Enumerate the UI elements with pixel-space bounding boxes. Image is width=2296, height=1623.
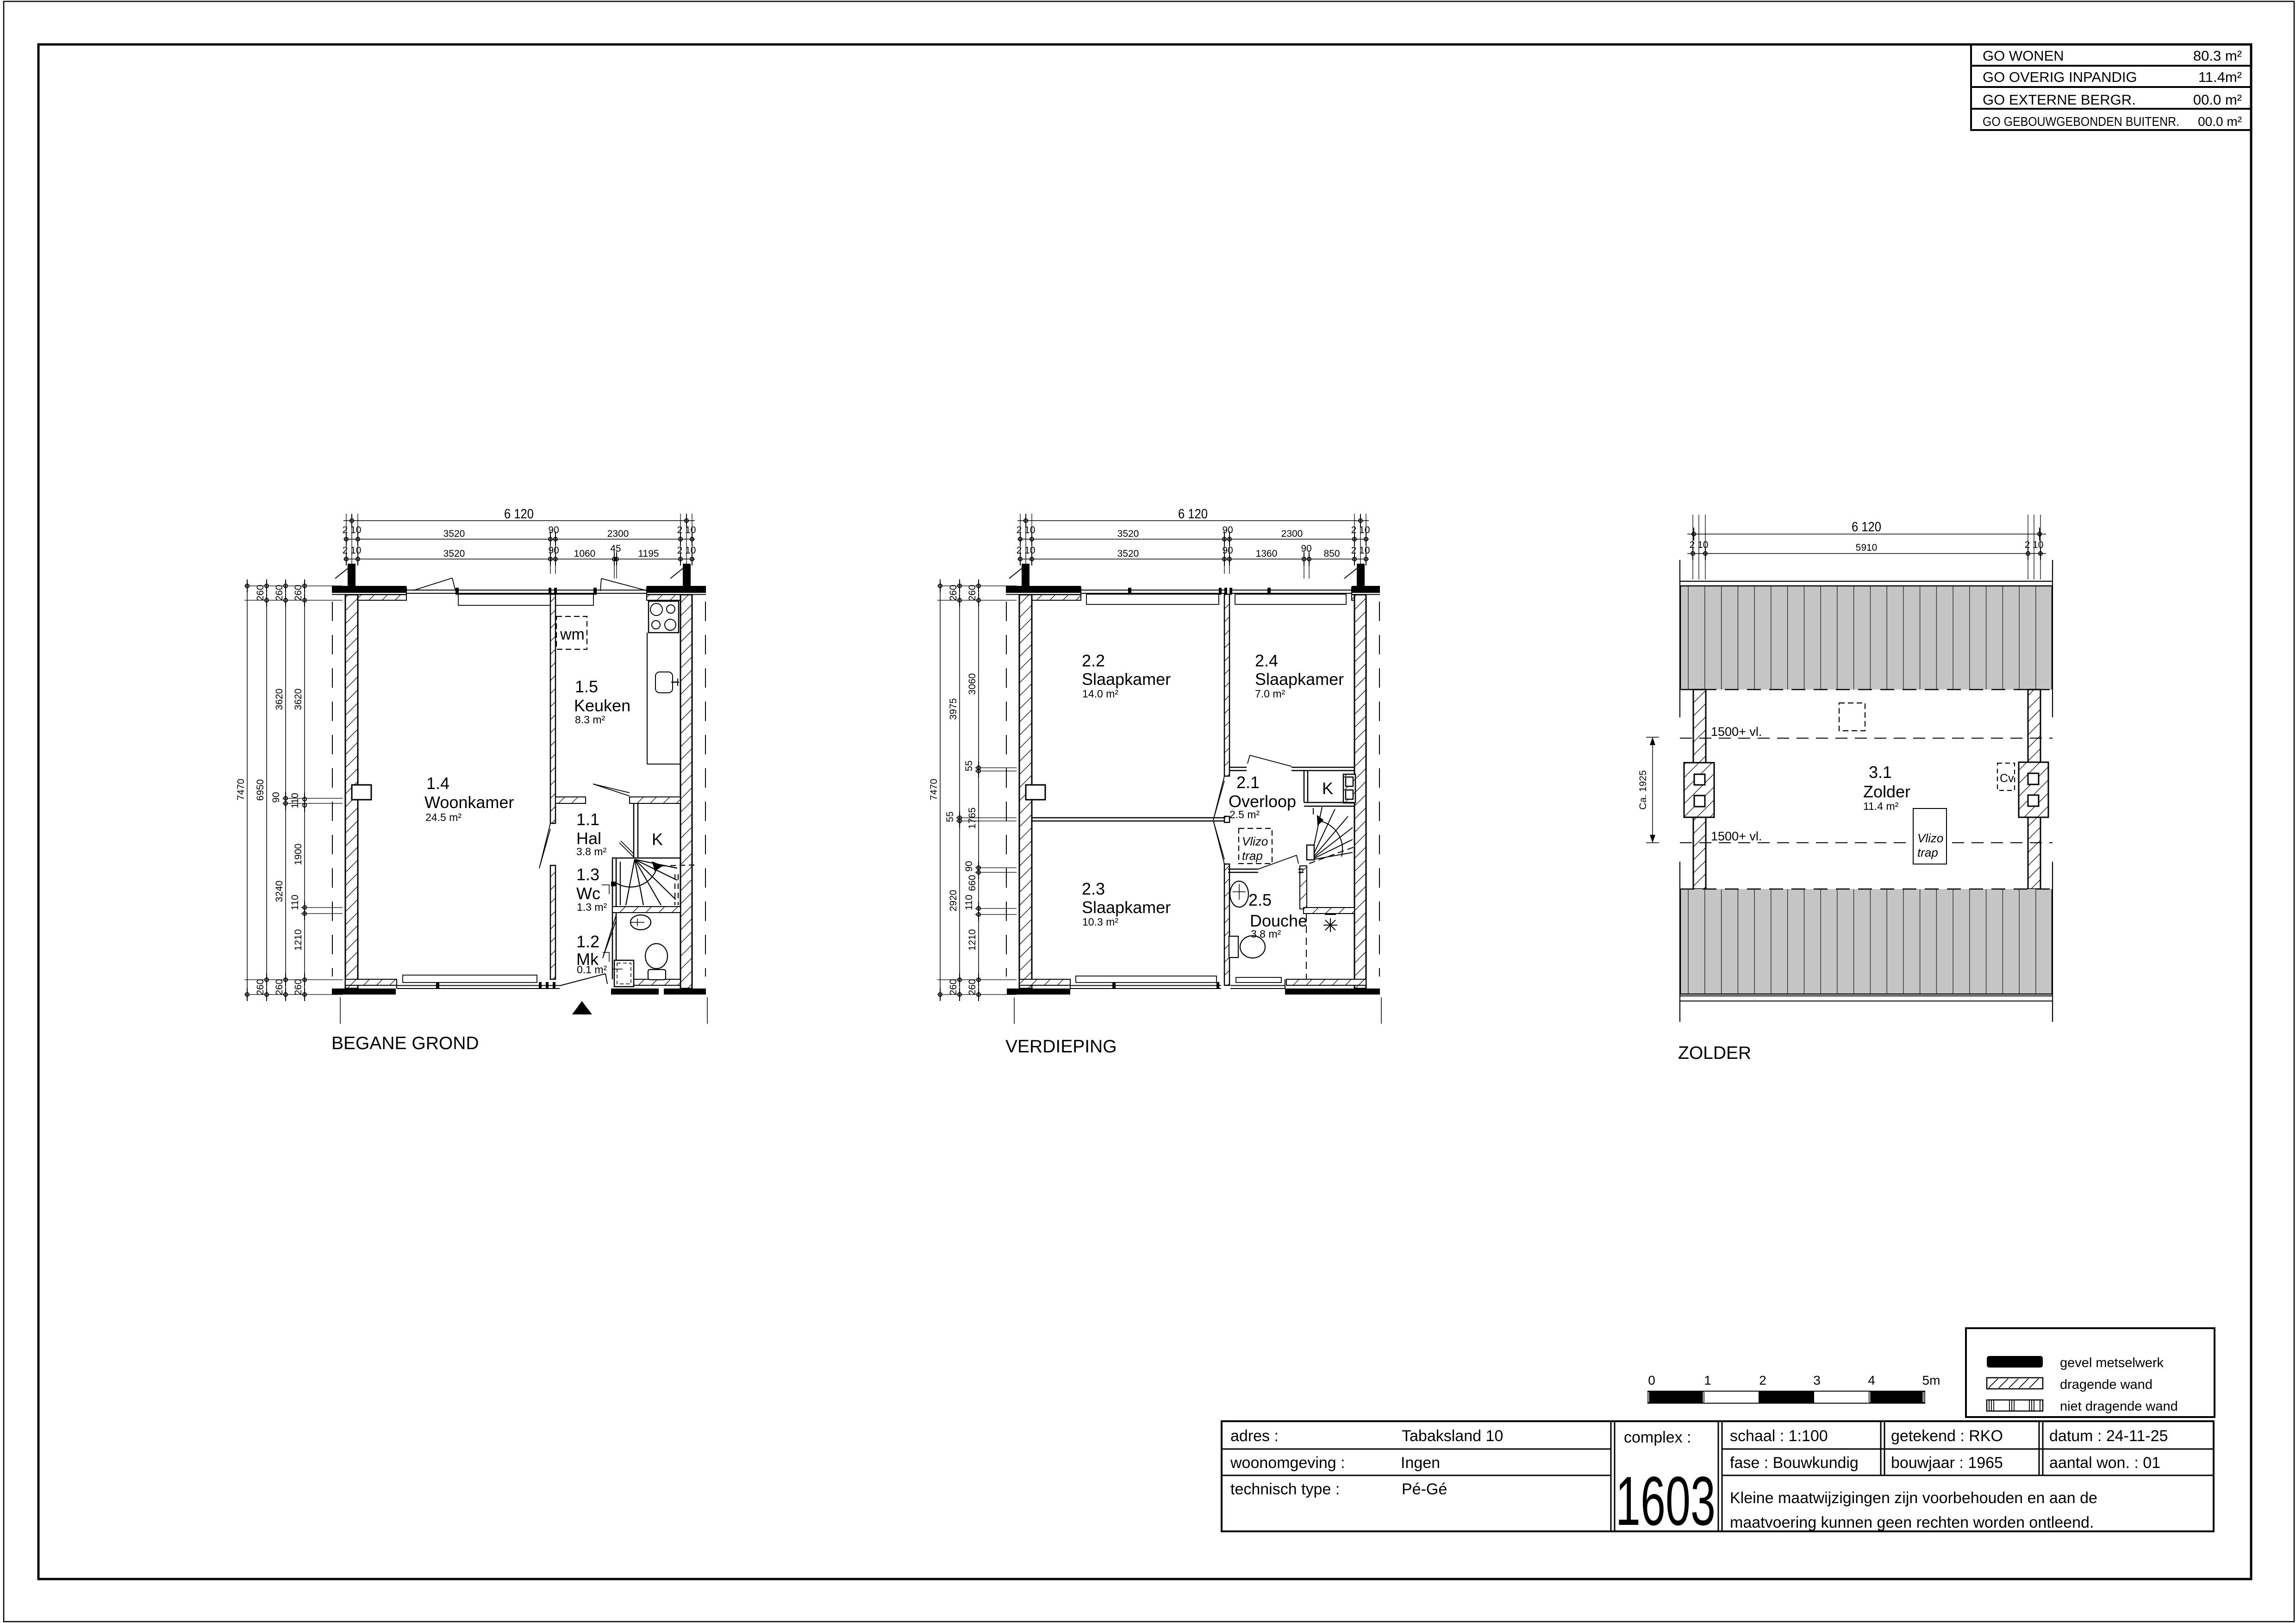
svg-text:1900: 1900 bbox=[293, 844, 304, 865]
svg-text:3620: 3620 bbox=[274, 689, 285, 710]
svg-text:850: 850 bbox=[1323, 548, 1340, 559]
svg-text:2920: 2920 bbox=[948, 890, 959, 912]
svg-text:260: 260 bbox=[255, 585, 266, 601]
svg-text:1500+ vl.: 1500+ vl. bbox=[1711, 725, 1762, 739]
svg-text:7470: 7470 bbox=[236, 779, 246, 801]
svg-text:schaal : 1:100: schaal : 1:100 bbox=[1730, 1427, 1828, 1445]
svg-text:Slaapkamer: Slaapkamer bbox=[1255, 670, 1344, 689]
svg-text:Ca. 1925: Ca. 1925 bbox=[1638, 770, 1648, 809]
svg-text:6 120: 6 120 bbox=[1852, 520, 1881, 535]
svg-text:K: K bbox=[1322, 779, 1333, 798]
svg-text:technisch type :: technisch type : bbox=[1230, 1480, 1340, 1498]
svg-text:2.2: 2.2 bbox=[1082, 651, 1105, 670]
svg-text:90: 90 bbox=[1222, 525, 1233, 535]
svg-text:2 10: 2 10 bbox=[1017, 545, 1036, 556]
svg-text:6 120: 6 120 bbox=[504, 507, 534, 522]
svg-text:1210: 1210 bbox=[967, 929, 978, 951]
svg-text:6950: 6950 bbox=[255, 779, 266, 801]
svg-text:90: 90 bbox=[548, 545, 559, 556]
svg-text:Kleine maatwijzigingen zijn vo: Kleine maatwijzigingen zijn voorbehouden… bbox=[1730, 1489, 2097, 1507]
svg-text:90: 90 bbox=[271, 792, 281, 802]
svg-text:2.5: 2.5 bbox=[1248, 890, 1272, 909]
svg-text:3060: 3060 bbox=[967, 673, 978, 695]
svg-text:45: 45 bbox=[610, 543, 621, 554]
svg-text:2 10: 2 10 bbox=[677, 525, 696, 535]
svg-text:260: 260 bbox=[274, 585, 285, 601]
svg-text:Hal: Hal bbox=[576, 829, 601, 848]
svg-text:0.1 m²: 0.1 m² bbox=[577, 964, 607, 976]
svg-text:1603: 1603 bbox=[1616, 1462, 1716, 1540]
svg-text:GO GEBOUWGEBONDEN BUITENR.: GO GEBOUWGEBONDEN BUITENR. bbox=[1983, 114, 2179, 129]
svg-text:Ingen: Ingen bbox=[1401, 1454, 1440, 1472]
svg-text:1: 1 bbox=[1704, 1373, 1711, 1387]
svg-text:ZOLDER: ZOLDER bbox=[1678, 1043, 1751, 1063]
svg-text:datum : 24-11-25: datum : 24-11-25 bbox=[2049, 1427, 2168, 1445]
svg-text:260: 260 bbox=[274, 979, 285, 995]
svg-text:woonomgeving :: woonomgeving : bbox=[1230, 1454, 1345, 1472]
svg-text:3240: 3240 bbox=[274, 881, 285, 902]
svg-text:0: 0 bbox=[1648, 1373, 1655, 1387]
svg-text:complex :: complex : bbox=[1624, 1429, 1691, 1446]
svg-text:110: 110 bbox=[290, 793, 300, 808]
svg-text:660: 660 bbox=[967, 875, 978, 891]
svg-text:3.1: 3.1 bbox=[1869, 763, 1892, 782]
svg-text:gevel metselwerk: gevel metselwerk bbox=[2060, 1356, 2164, 1370]
svg-text:3.8 m²: 3.8 m² bbox=[576, 846, 607, 858]
svg-text:1.3 m²: 1.3 m² bbox=[577, 901, 607, 913]
svg-text:260: 260 bbox=[255, 979, 266, 995]
svg-text:Keuken: Keuken bbox=[574, 696, 630, 715]
svg-text:3520: 3520 bbox=[443, 548, 465, 559]
svg-text:55: 55 bbox=[945, 811, 955, 822]
svg-text:bouwjaar : 1965: bouwjaar : 1965 bbox=[1891, 1454, 2003, 1472]
svg-text:BEGANE GROND: BEGANE GROND bbox=[331, 1033, 479, 1053]
svg-text:trap: trap bbox=[1917, 846, 1938, 859]
svg-text:3: 3 bbox=[1813, 1373, 1821, 1387]
svg-text:1.3: 1.3 bbox=[576, 865, 599, 884]
svg-text:5910: 5910 bbox=[1856, 542, 1878, 553]
svg-text:7470: 7470 bbox=[929, 779, 939, 801]
svg-text:1195: 1195 bbox=[638, 548, 659, 559]
svg-text:110: 110 bbox=[290, 895, 300, 910]
svg-text:Zolder: Zolder bbox=[1863, 782, 1910, 801]
svg-text:adres :: adres : bbox=[1230, 1427, 1279, 1445]
svg-text:260: 260 bbox=[293, 585, 304, 601]
svg-text:2 10: 2 10 bbox=[1017, 525, 1036, 535]
svg-text:1.4: 1.4 bbox=[426, 774, 449, 793]
svg-text:trap: trap bbox=[1242, 849, 1263, 863]
svg-text:Douche: Douche bbox=[1250, 911, 1307, 930]
svg-text:GO EXTERNE BERGR.: GO EXTERNE BERGR. bbox=[1983, 92, 2136, 108]
svg-text:Overloop: Overloop bbox=[1229, 792, 1296, 811]
svg-text:2.3: 2.3 bbox=[1082, 879, 1105, 898]
svg-text:2: 2 bbox=[1759, 1373, 1766, 1387]
svg-text:00.0 m²: 00.0 m² bbox=[2198, 114, 2242, 129]
svg-text:8.3 m²: 8.3 m² bbox=[575, 714, 605, 726]
svg-text:fase : Bouwkundig: fase : Bouwkundig bbox=[1730, 1454, 1859, 1472]
svg-text:3975: 3975 bbox=[948, 698, 959, 720]
svg-text:1.2: 1.2 bbox=[576, 932, 599, 951]
svg-text:90: 90 bbox=[1222, 545, 1233, 556]
svg-text:getekend : RKO: getekend : RKO bbox=[1891, 1427, 2003, 1445]
svg-text:Woonkamer: Woonkamer bbox=[424, 793, 514, 812]
svg-text:7.0 m²: 7.0 m² bbox=[1255, 688, 1285, 700]
svg-text:Vlizo: Vlizo bbox=[1917, 831, 1943, 845]
svg-text:2 10: 2 10 bbox=[343, 525, 362, 535]
svg-text:Slaapkamer: Slaapkamer bbox=[1082, 898, 1171, 917]
svg-text:2.1: 2.1 bbox=[1236, 773, 1260, 792]
svg-text:260: 260 bbox=[948, 979, 959, 995]
svg-text:K: K bbox=[652, 830, 663, 849]
svg-text:3520: 3520 bbox=[443, 529, 465, 539]
svg-text:2300: 2300 bbox=[1281, 529, 1303, 539]
svg-text:1210: 1210 bbox=[293, 929, 304, 951]
svg-text:260: 260 bbox=[948, 585, 959, 601]
svg-text:Wc: Wc bbox=[576, 884, 600, 903]
svg-text:niet dragende wand: niet dragende wand bbox=[2060, 1399, 2178, 1414]
svg-text:2.4: 2.4 bbox=[1255, 651, 1278, 670]
svg-text:1060: 1060 bbox=[574, 548, 596, 559]
svg-text:Tabaksland 10: Tabaksland 10 bbox=[1402, 1427, 1503, 1445]
svg-text:wm: wm bbox=[560, 626, 585, 643]
svg-text:aantal won. : 01: aantal won. : 01 bbox=[2049, 1454, 2160, 1472]
svg-text:Slaapkamer: Slaapkamer bbox=[1082, 670, 1171, 689]
svg-text:14.0 m²: 14.0 m² bbox=[1082, 688, 1118, 700]
svg-text:00.0 m²: 00.0 m² bbox=[2193, 92, 2242, 108]
svg-text:2.5 m²: 2.5 m² bbox=[1229, 808, 1260, 821]
svg-text:GO WONEN: GO WONEN bbox=[1983, 48, 2064, 64]
svg-text:1765: 1765 bbox=[967, 808, 978, 829]
svg-text:maatvoering kunnen geen rechte: maatvoering kunnen geen rechten worden o… bbox=[1730, 1514, 2094, 1531]
svg-text:1360: 1360 bbox=[1256, 548, 1278, 559]
svg-text:VERDIEPING: VERDIEPING bbox=[1005, 1037, 1117, 1057]
svg-text:1.5: 1.5 bbox=[575, 677, 598, 696]
svg-text:2300: 2300 bbox=[607, 529, 629, 539]
svg-text:260: 260 bbox=[967, 585, 978, 601]
svg-text:260: 260 bbox=[293, 979, 304, 995]
svg-text:Vlizo: Vlizo bbox=[1242, 834, 1268, 848]
svg-text:4: 4 bbox=[1868, 1373, 1875, 1387]
svg-text:10.3 m²: 10.3 m² bbox=[1082, 916, 1118, 928]
svg-text:2 10: 2 10 bbox=[2025, 540, 2044, 550]
svg-text:1500+ vl.: 1500+ vl. bbox=[1711, 829, 1762, 843]
svg-text:24.5 m²: 24.5 m² bbox=[425, 811, 462, 823]
svg-text:2 10: 2 10 bbox=[1351, 525, 1370, 535]
svg-text:3620: 3620 bbox=[293, 689, 304, 710]
svg-text:3520: 3520 bbox=[1117, 529, 1139, 539]
svg-text:3.8 m²: 3.8 m² bbox=[1251, 928, 1281, 940]
svg-text:Pé-Gé: Pé-Gé bbox=[1402, 1480, 1447, 1498]
svg-text:3520: 3520 bbox=[1117, 548, 1139, 559]
svg-text:80.3 m²: 80.3 m² bbox=[2193, 48, 2242, 64]
svg-text:2 10: 2 10 bbox=[1351, 545, 1370, 556]
svg-text:90: 90 bbox=[964, 861, 974, 871]
svg-text:1.1: 1.1 bbox=[576, 810, 599, 829]
svg-text:90: 90 bbox=[1301, 543, 1311, 554]
svg-text:2 10: 2 10 bbox=[1690, 540, 1709, 550]
svg-text:2 10: 2 10 bbox=[677, 545, 696, 556]
svg-text:GO OVERIG INPANDIG: GO OVERIG INPANDIG bbox=[1983, 69, 2137, 85]
svg-text:6 120: 6 120 bbox=[1178, 507, 1208, 522]
svg-text:11.4m²: 11.4m² bbox=[2198, 69, 2242, 85]
svg-text:55: 55 bbox=[964, 760, 974, 771]
svg-text:Cv: Cv bbox=[2000, 772, 2014, 785]
svg-text:260: 260 bbox=[967, 979, 978, 995]
svg-text:2 10: 2 10 bbox=[343, 545, 362, 556]
svg-text:110: 110 bbox=[964, 895, 974, 910]
svg-text:5m: 5m bbox=[1922, 1373, 1940, 1387]
svg-text:11.4 m²: 11.4 m² bbox=[1863, 800, 1899, 812]
svg-text:90: 90 bbox=[548, 525, 559, 535]
svg-text:dragende wand: dragende wand bbox=[2060, 1377, 2152, 1392]
